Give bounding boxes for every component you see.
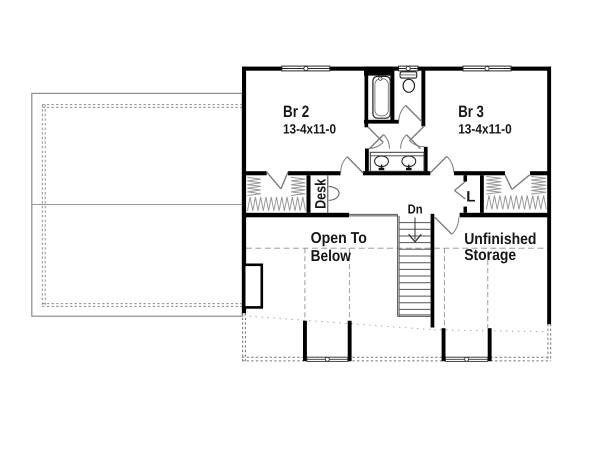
svg-text:Below: Below: [311, 248, 352, 265]
svg-text:13-4x11-0: 13-4x11-0: [283, 122, 336, 137]
svg-text:Br 3: Br 3: [458, 103, 484, 121]
svg-text:Open To: Open To: [311, 230, 368, 247]
svg-text:Br 2: Br 2: [283, 103, 309, 121]
svg-text:Storage: Storage: [464, 247, 516, 264]
svg-text:Unfinished: Unfinished: [464, 231, 536, 248]
svg-text:13-4x11-0: 13-4x11-0: [458, 122, 512, 137]
svg-text:Desk: Desk: [312, 178, 329, 209]
svg-text:Dn: Dn: [408, 201, 423, 216]
svg-text:L: L: [466, 189, 475, 206]
